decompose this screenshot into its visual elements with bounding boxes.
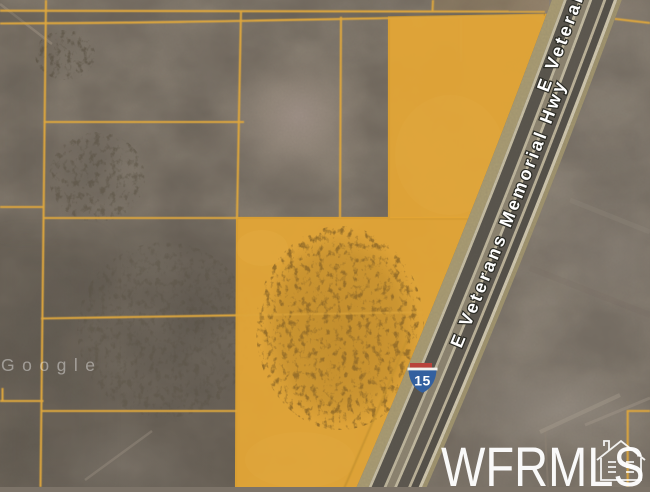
svg-text:15: 15 <box>414 373 431 389</box>
